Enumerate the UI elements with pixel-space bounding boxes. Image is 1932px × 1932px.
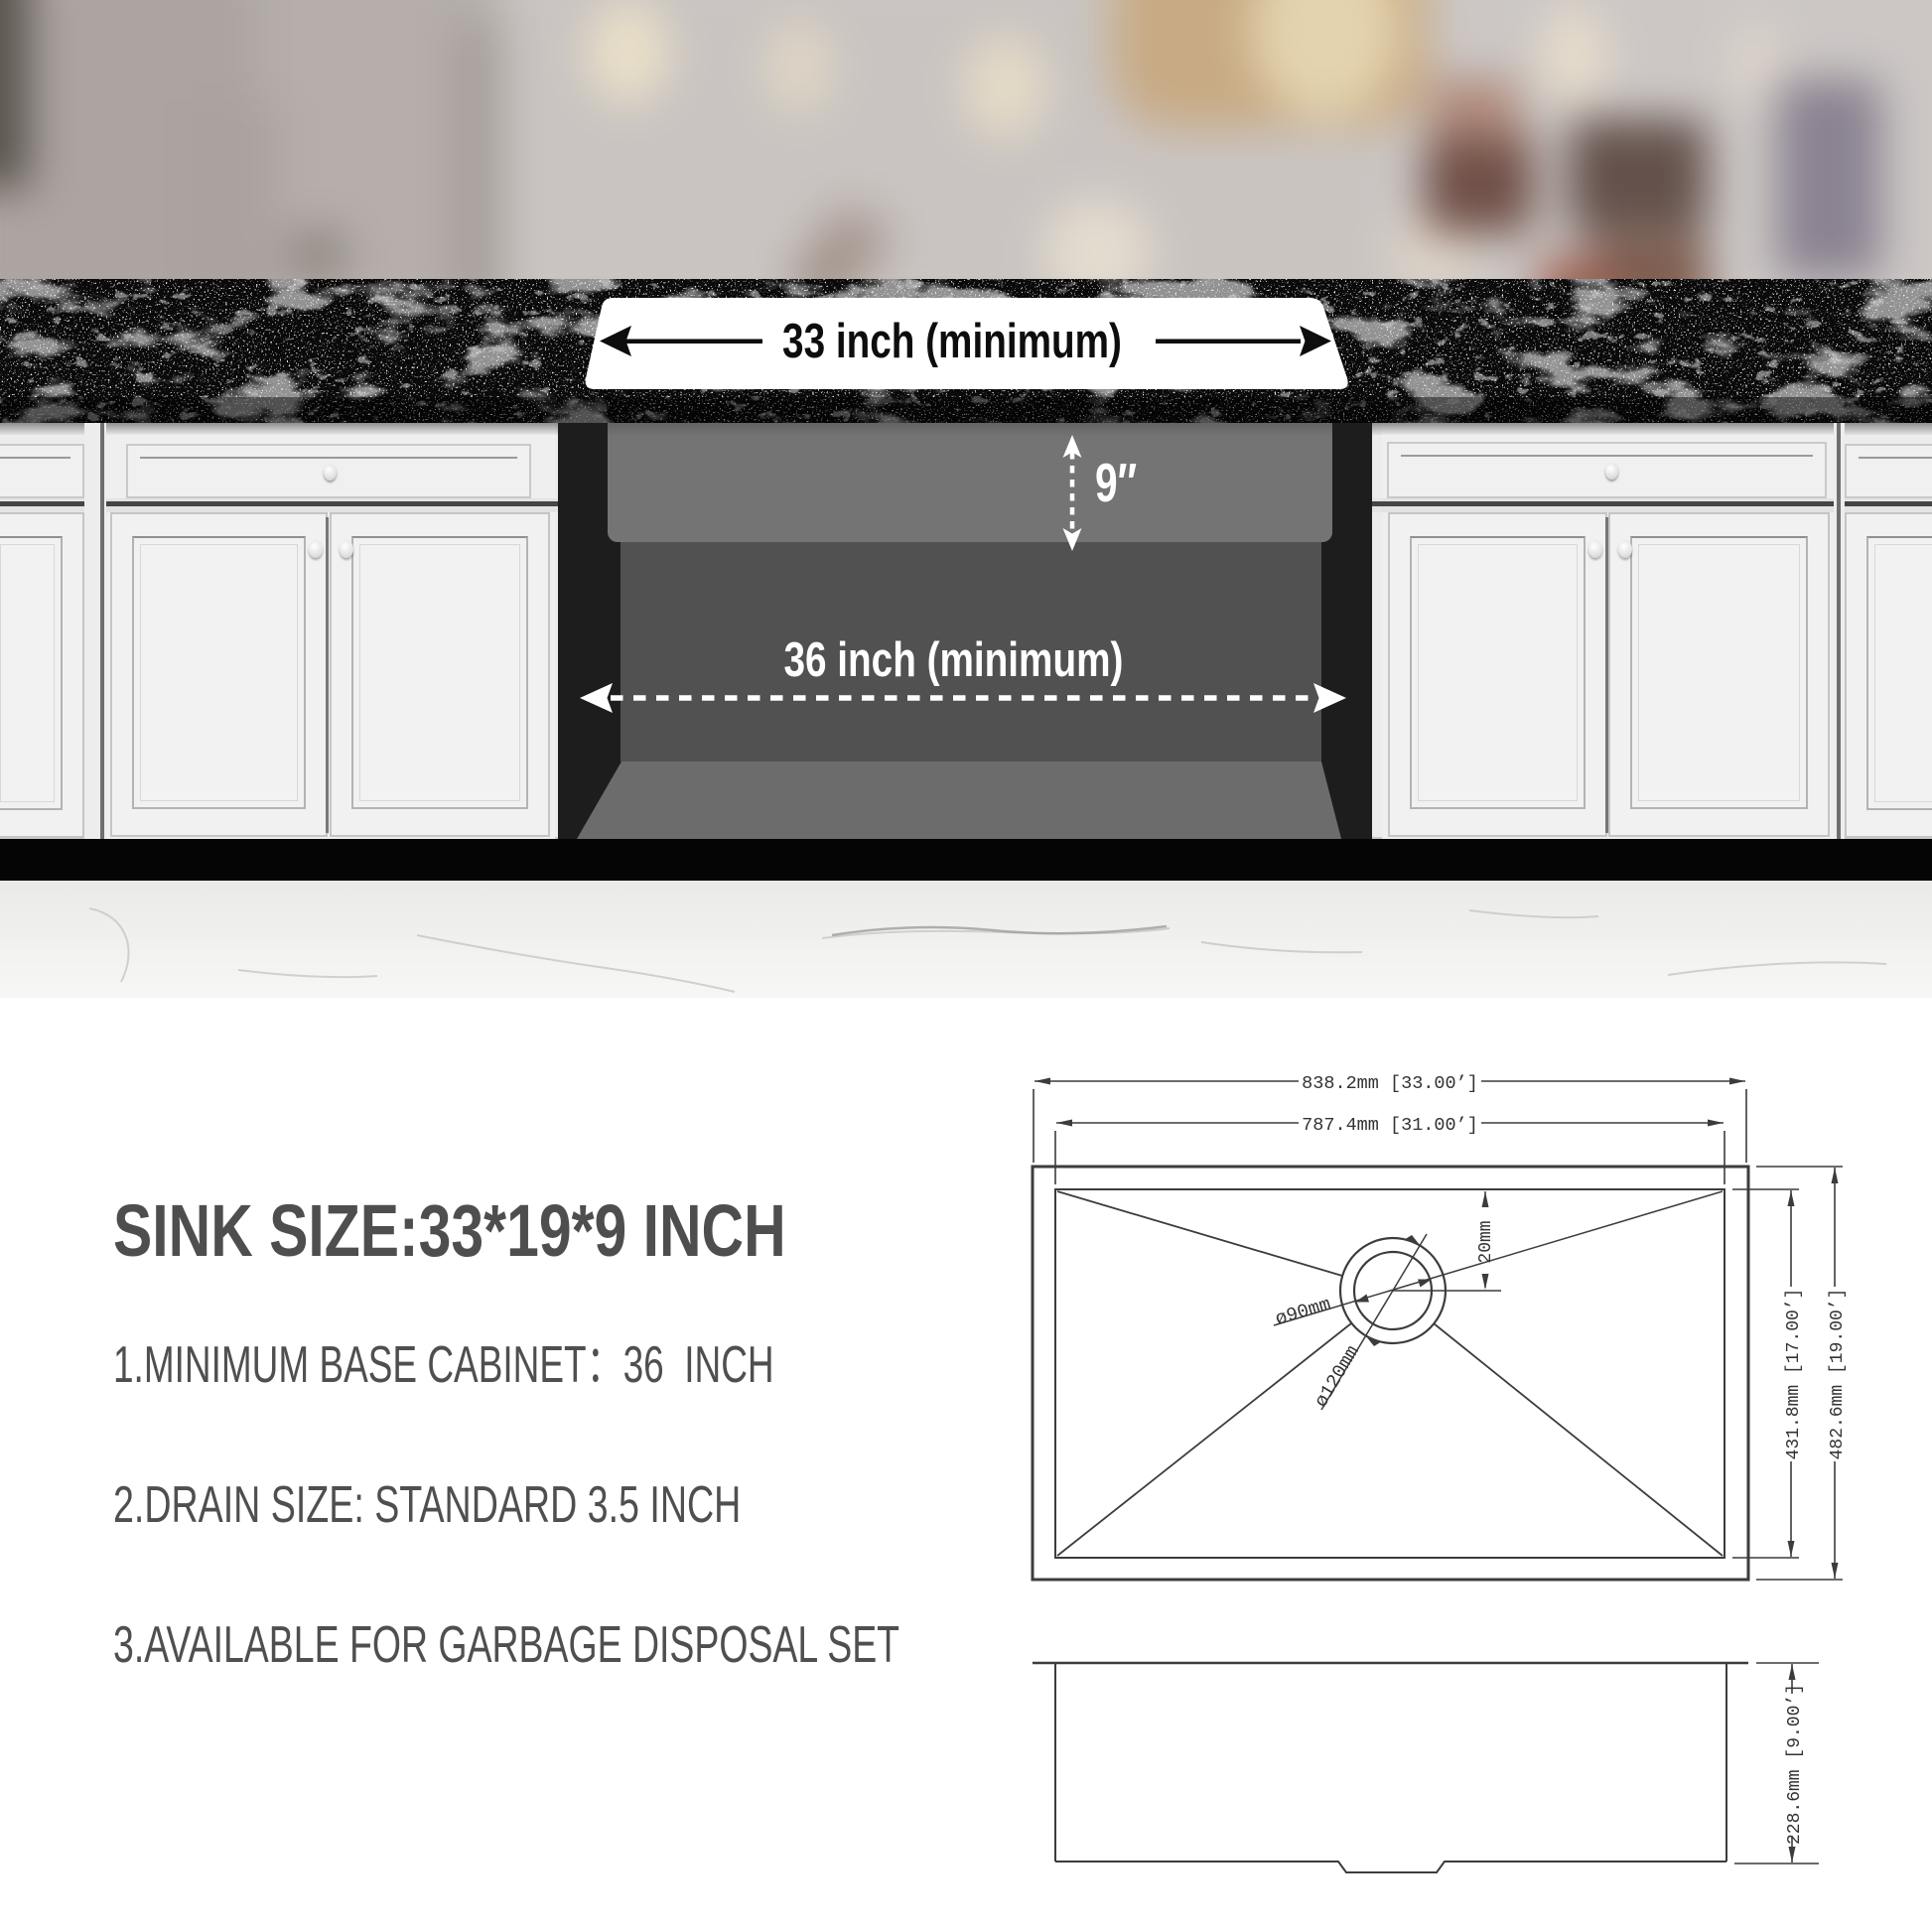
svg-text:838.2mm [33.00’]: 838.2mm [33.00’] xyxy=(1302,1073,1478,1094)
svg-text:482.6mm [19.00’]: 482.6mm [19.00’] xyxy=(1828,1289,1848,1460)
svg-text:ø90mm: ø90mm xyxy=(1273,1294,1333,1330)
svg-text:20mm: 20mm xyxy=(1476,1220,1496,1263)
svg-text:ø120mm: ø120mm xyxy=(1311,1341,1364,1411)
svg-text:787.4mm [31.00’]: 787.4mm [31.00’] xyxy=(1302,1115,1478,1136)
svg-text:33 inch (minimum): 33 inch (minimum) xyxy=(782,315,1122,368)
svg-text:228.6mm [9.00’]: 228.6mm [9.00’] xyxy=(1785,1684,1805,1845)
svg-text:431.8mm [17.00’]: 431.8mm [17.00’] xyxy=(1784,1289,1804,1460)
